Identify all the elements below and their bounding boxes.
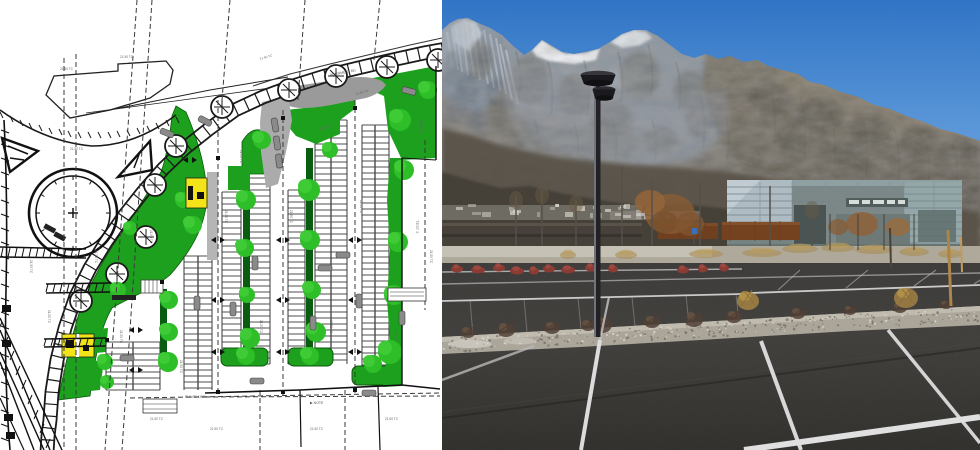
- svg-text:21.50 TC: 21.50 TC: [119, 330, 123, 344]
- svg-text:21.50 TC: 21.50 TC: [47, 310, 51, 324]
- svg-text:21.50 TC: 21.50 TC: [224, 210, 228, 224]
- svg-text:21.50 TC: 21.50 TC: [429, 250, 433, 264]
- svg-text:21.50 TC: 21.50 TC: [94, 250, 98, 264]
- svg-text:21.50 TC: 21.50 TC: [60, 67, 74, 71]
- svg-text:21.50 TC: 21.50 TC: [359, 200, 363, 214]
- svg-text:21.50 TC: 21.50 TC: [329, 320, 333, 334]
- svg-text:21.50 TC: 21.50 TC: [419, 120, 423, 134]
- svg-text:▶ NOTE: ▶ NOTE: [310, 401, 324, 405]
- svg-text:21.50 TC: 21.50 TC: [310, 427, 324, 431]
- svg-text:21.50 TC: 21.50 TC: [239, 150, 243, 164]
- svg-text:21.50 TC: 21.50 TC: [29, 260, 33, 274]
- svg-text:PHASE LINE: PHASE LINE: [185, 395, 206, 399]
- svg-text:21.50 TC: 21.50 TC: [210, 427, 224, 431]
- svg-text:21.50 TC: 21.50 TC: [70, 147, 84, 151]
- svg-text:21.50 TC: 21.50 TC: [179, 360, 183, 374]
- svg-text:21.50 TC: 21.50 TC: [394, 330, 398, 344]
- svg-text:21.50 TC: 21.50 TC: [150, 417, 164, 421]
- svg-text:TEST 2: TEST 2: [415, 220, 420, 234]
- svg-text:21.50 TC: 21.50 TC: [385, 417, 399, 421]
- svg-text:21.50 TC: 21.50 TC: [149, 230, 153, 244]
- svg-text:21.50 TC: 21.50 TC: [289, 210, 293, 224]
- svg-text:21.50 TC: 21.50 TC: [120, 55, 134, 59]
- svg-text:21.50 TC: 21.50 TC: [259, 320, 263, 334]
